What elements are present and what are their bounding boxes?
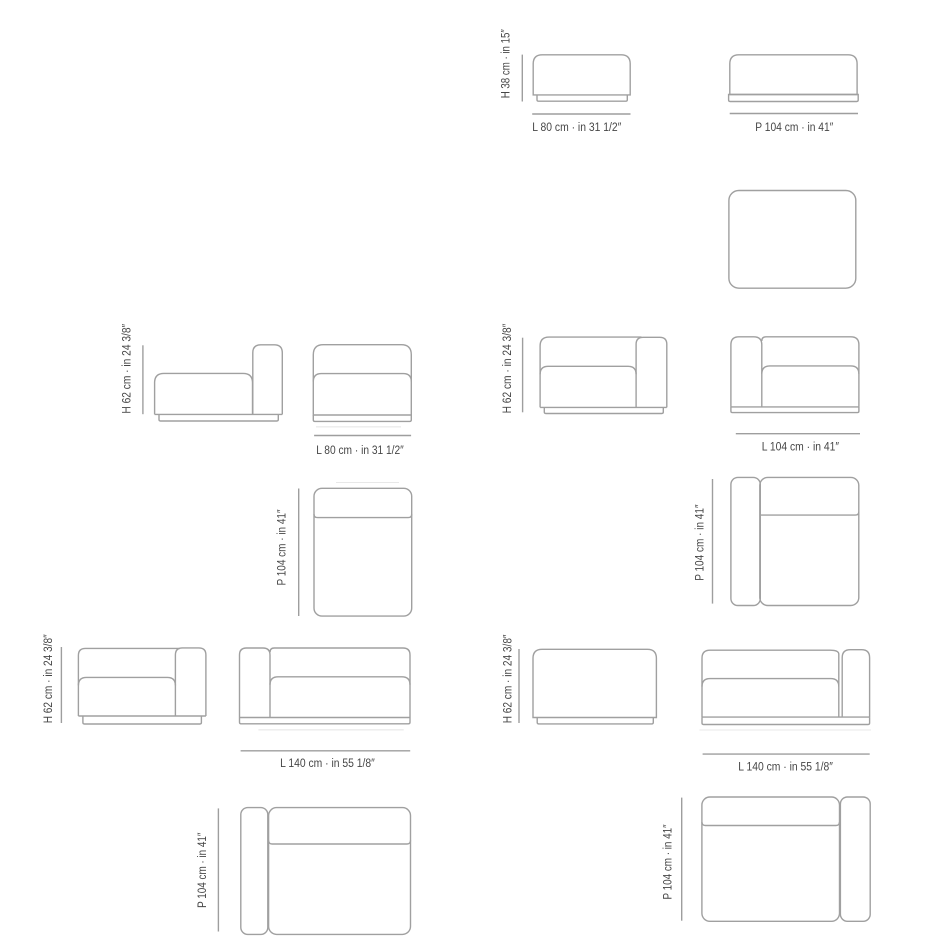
svg-text:L 140 cm · in 55 1/8″: L 140 cm · in 55 1/8″	[280, 756, 375, 770]
svg-text:P 104 cm · in 41″: P 104 cm · in 41″	[755, 120, 834, 134]
svg-text:H 62 cm · in 24 3/8″: H 62 cm · in 24 3/8″	[120, 323, 134, 413]
svg-text:L 104 cm · in 41″: L 104 cm · in 41″	[762, 440, 840, 454]
svg-text:P 104 cm · in 41″: P 104 cm · in 41″	[660, 824, 674, 900]
svg-text:P 104 cm · in 41″: P 104 cm · in 41″	[275, 509, 289, 586]
svg-text:L 80 cm · in 31 1/2″: L 80 cm · in 31 1/2″	[532, 120, 622, 134]
svg-text:H 62 cm · in 24 3/8″: H 62 cm · in 24 3/8″	[41, 634, 55, 724]
svg-text:H 62 cm · in 24 3/8″: H 62 cm · in 24 3/8″	[500, 634, 514, 723]
svg-text:H 62 cm · in 24 3/8″: H 62 cm · in 24 3/8″	[500, 323, 514, 413]
svg-text:L 140 cm · in 55 1/8″: L 140 cm · in 55 1/8″	[738, 759, 833, 773]
svg-text:L 80 cm · in 31 1/2″: L 80 cm · in 31 1/2″	[316, 443, 404, 457]
svg-text:P 104 cm · in 41″: P 104 cm · in 41″	[693, 504, 707, 581]
svg-text:H 38 cm · in 15″: H 38 cm · in 15″	[499, 29, 513, 99]
svg-text:P 104 cm · in 41″: P 104 cm · in 41″	[195, 832, 209, 908]
